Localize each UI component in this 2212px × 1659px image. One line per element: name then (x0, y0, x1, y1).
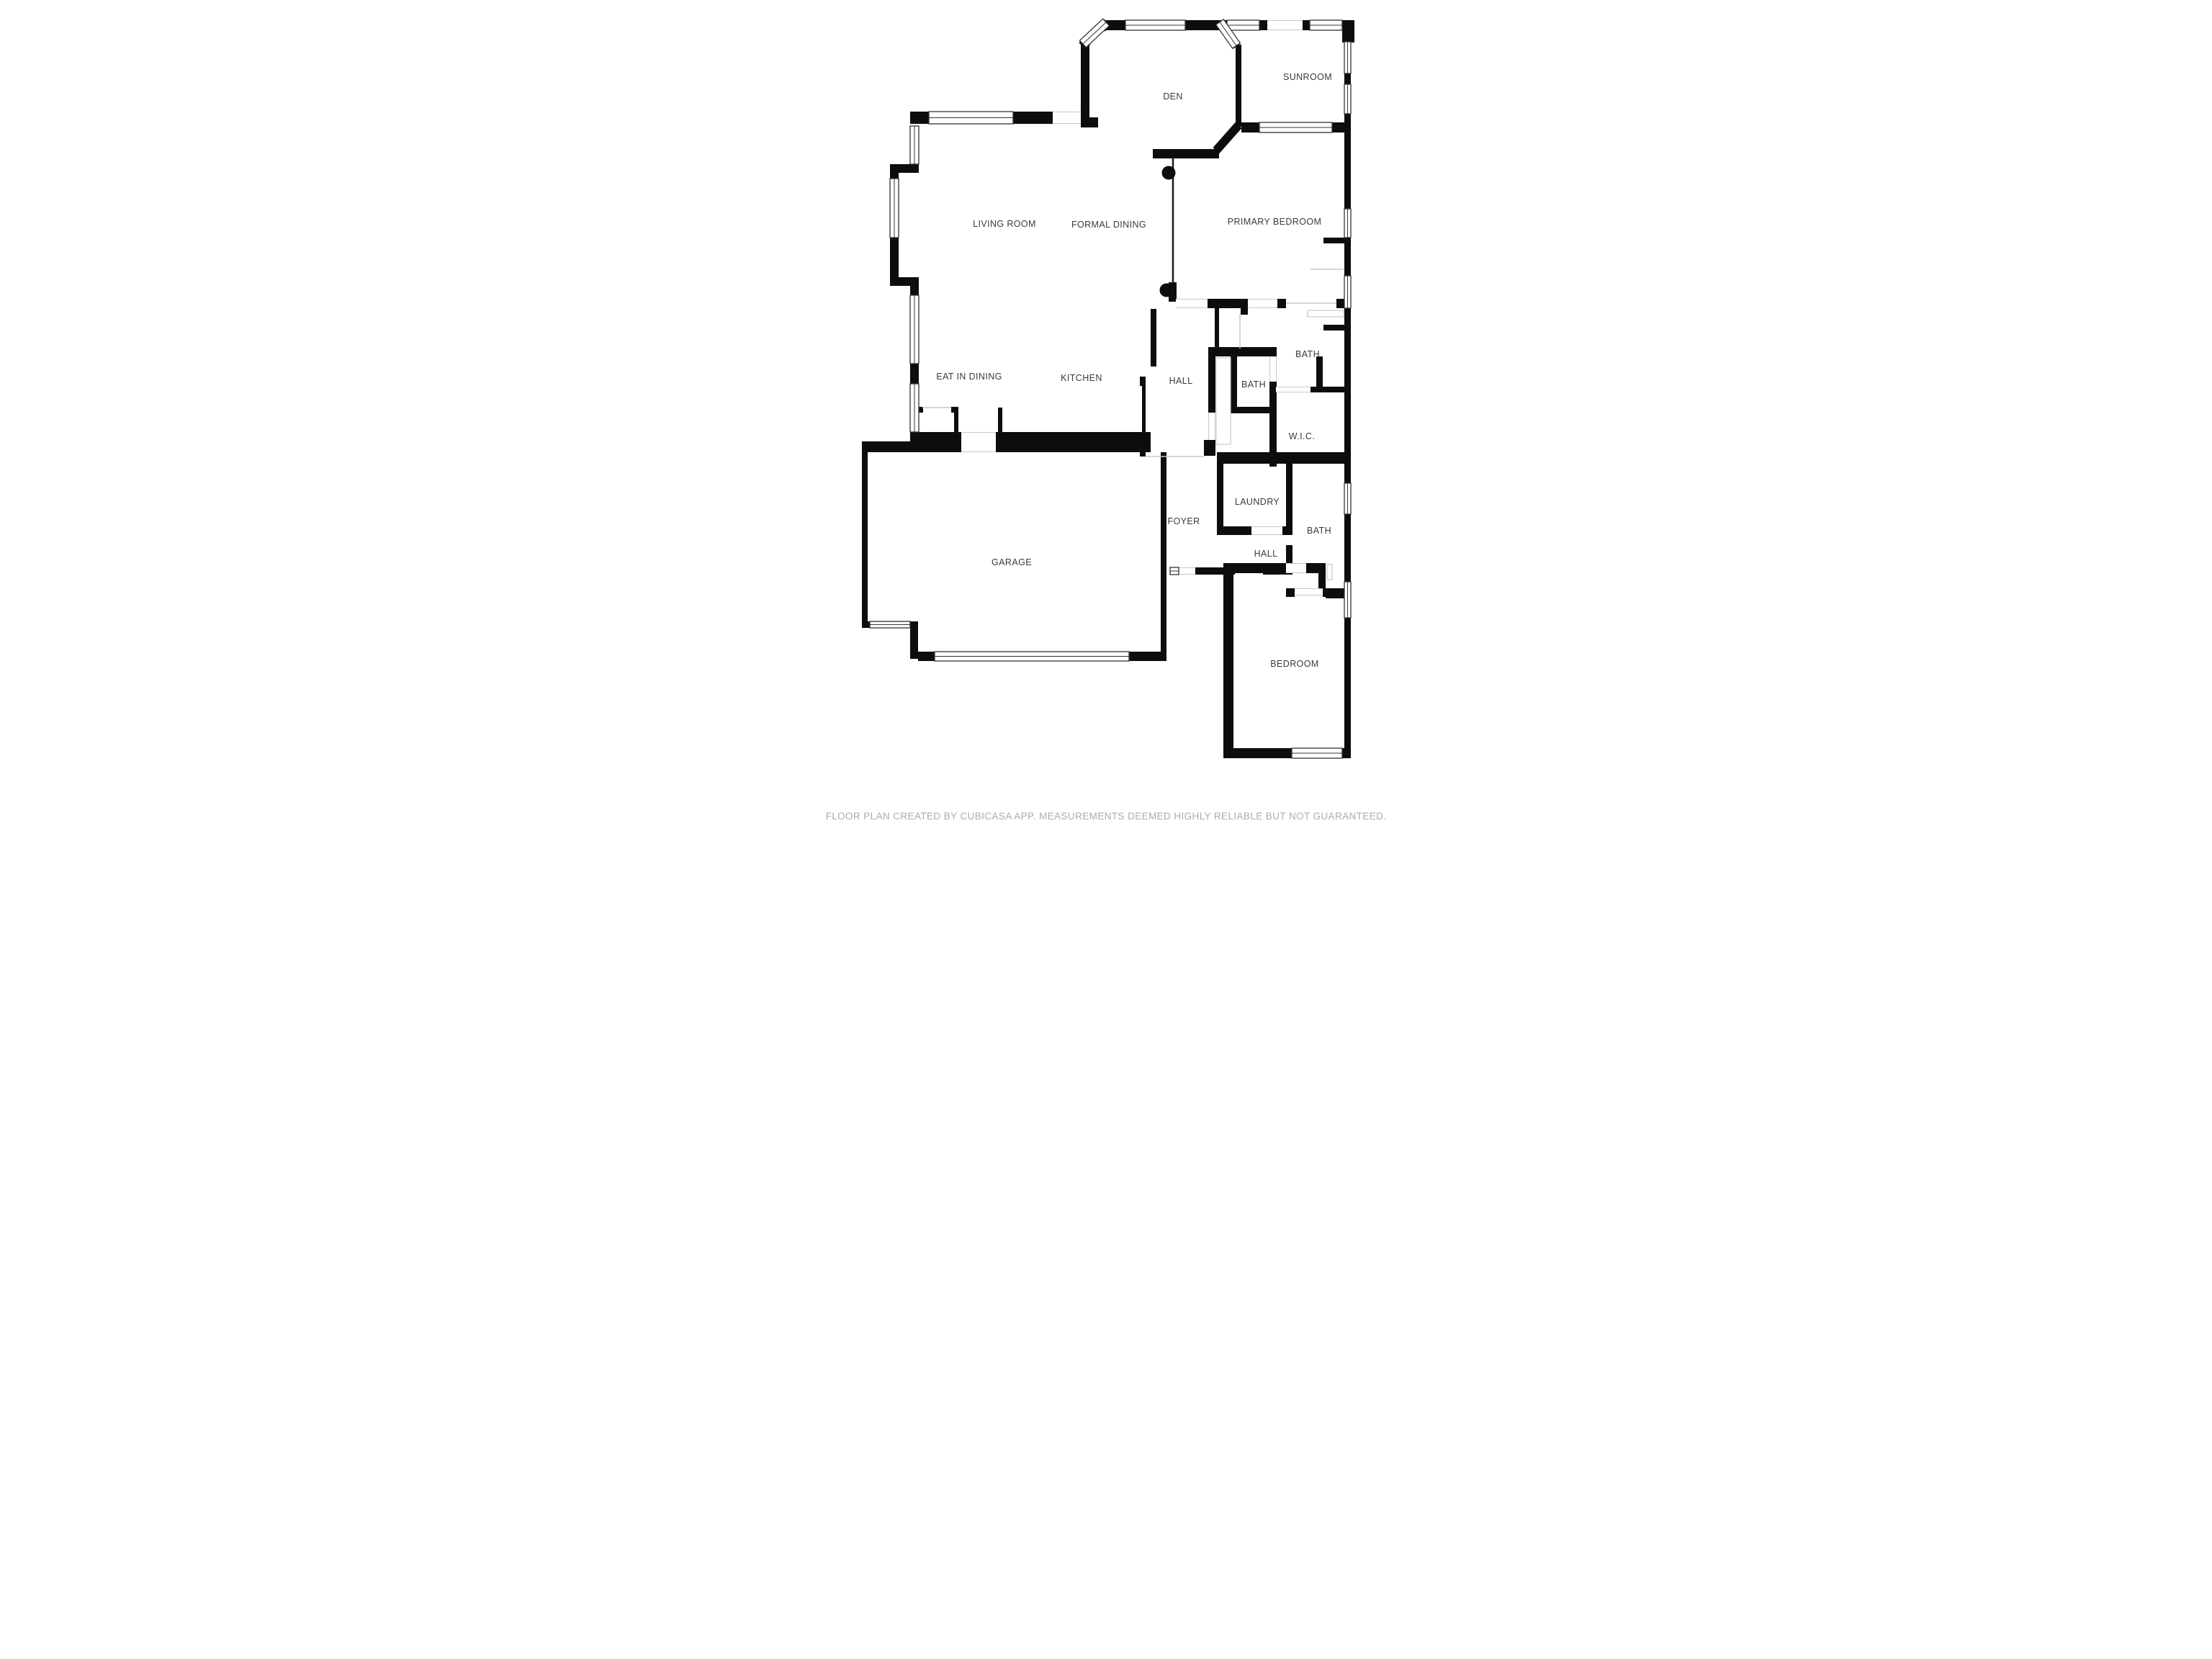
wall (1208, 347, 1277, 356)
door-opening (1276, 387, 1310, 392)
wall (862, 441, 868, 627)
room-label-bedroom: BEDROOM (1270, 659, 1318, 669)
wall (996, 432, 1151, 452)
footer-disclaimer: FLOOR PLAN CREATED BY CUBICASA APP. MEAS… (553, 811, 1659, 822)
wall (1310, 387, 1344, 392)
column (1160, 284, 1174, 297)
wall (1241, 299, 1248, 315)
wall (1236, 45, 1241, 127)
wall (1140, 377, 1146, 386)
room-label-garage: GARAGE (992, 557, 1032, 567)
wall (1292, 452, 1344, 464)
wall (1241, 122, 1260, 132)
wall (1344, 308, 1351, 325)
wall (1332, 122, 1351, 132)
room-label-eat-in-dining: EAT IN DINING (936, 372, 1002, 382)
wall (1223, 526, 1251, 535)
wall (1336, 299, 1344, 308)
door-opening (1251, 526, 1282, 535)
room-label-living-room: LIVING ROOM (973, 219, 1036, 229)
room-label-foyer: FOYER (1167, 516, 1200, 526)
wall (910, 364, 919, 384)
wall (1223, 748, 1292, 758)
bay-window (1079, 19, 1109, 48)
wall (1323, 588, 1347, 597)
door-opening (1208, 413, 1215, 440)
wall (1342, 748, 1351, 758)
wall (1282, 526, 1286, 535)
wall (1151, 309, 1156, 367)
door-opening (1176, 299, 1208, 308)
wall (1081, 117, 1098, 127)
room-label-wic: W.I.C. (1289, 431, 1315, 441)
wall (910, 286, 919, 295)
room-label-kitchen: KITCHEN (1061, 373, 1102, 383)
wall (1217, 452, 1292, 464)
room-label-formal-dining: FORMAL DINING (1071, 220, 1146, 230)
wall (1323, 325, 1345, 331)
room-label-laundry: LAUNDRY (1235, 497, 1280, 507)
wall (1344, 325, 1351, 387)
door-opening (1269, 356, 1277, 382)
room-label-bath-primary: BATH (1295, 349, 1320, 359)
wall (1142, 386, 1146, 433)
room-label-bath-lower: BATH (1307, 526, 1331, 536)
door-opening (1286, 563, 1306, 573)
wall (890, 164, 919, 173)
door-opening (1295, 588, 1323, 595)
wall (1323, 238, 1345, 243)
wall (862, 441, 910, 452)
floor-plan: DENSUNROOMLIVING ROOMFORMAL DININGPRIMAR… (553, 0, 1659, 829)
room-label-hall-upper: HALL (1169, 376, 1193, 386)
wall (1129, 652, 1161, 661)
wall (1344, 514, 1351, 582)
wall (1344, 132, 1351, 209)
columns-layer (1160, 158, 1176, 297)
wall (1161, 452, 1166, 661)
door-opening (1053, 112, 1081, 124)
fixture (1308, 310, 1344, 317)
wall (954, 408, 958, 432)
wall (1215, 305, 1219, 348)
door-opening (961, 432, 996, 452)
wall (1303, 20, 1310, 30)
wall (1344, 618, 1351, 758)
room-label-primary-bedroom: PRIMARY BEDROOM (1228, 217, 1322, 227)
wall (1153, 149, 1219, 158)
column (1162, 166, 1176, 180)
wall (1342, 20, 1354, 42)
room-label-hall-lower: HALL (1254, 549, 1278, 559)
wall (1316, 356, 1323, 387)
wall (1277, 299, 1286, 308)
wall-diagonal (1216, 125, 1238, 150)
room-label-bath-hall: BATH (1241, 379, 1266, 390)
wall (1223, 563, 1233, 758)
wall (1286, 464, 1292, 535)
room-label-den: DEN (1163, 91, 1183, 102)
room-label-sunroom: SUNROOM (1283, 72, 1332, 82)
wall (918, 652, 935, 661)
wall (1344, 387, 1351, 467)
wall (910, 432, 961, 452)
wall (1231, 407, 1277, 413)
floor-plan-canvas (553, 0, 1659, 829)
fixture (1216, 358, 1231, 444)
wall (1344, 238, 1351, 276)
wall (862, 621, 870, 628)
wall (1286, 588, 1295, 597)
wall (1344, 73, 1351, 85)
wall (1217, 464, 1223, 535)
door-opening (1179, 567, 1195, 575)
wall (890, 277, 919, 286)
wall (1204, 440, 1215, 456)
wall (998, 408, 1002, 432)
wall (910, 621, 918, 659)
wall (1344, 467, 1351, 483)
fixture (1327, 565, 1332, 580)
wall (1344, 114, 1351, 122)
wall (1208, 353, 1215, 413)
door-opening (1267, 20, 1303, 30)
door-opening (1248, 299, 1277, 308)
wall (1259, 20, 1268, 30)
wall (1013, 112, 1053, 124)
wall (1231, 356, 1237, 413)
wall (1081, 43, 1089, 127)
diagonal-walls-layer (1082, 22, 1238, 150)
